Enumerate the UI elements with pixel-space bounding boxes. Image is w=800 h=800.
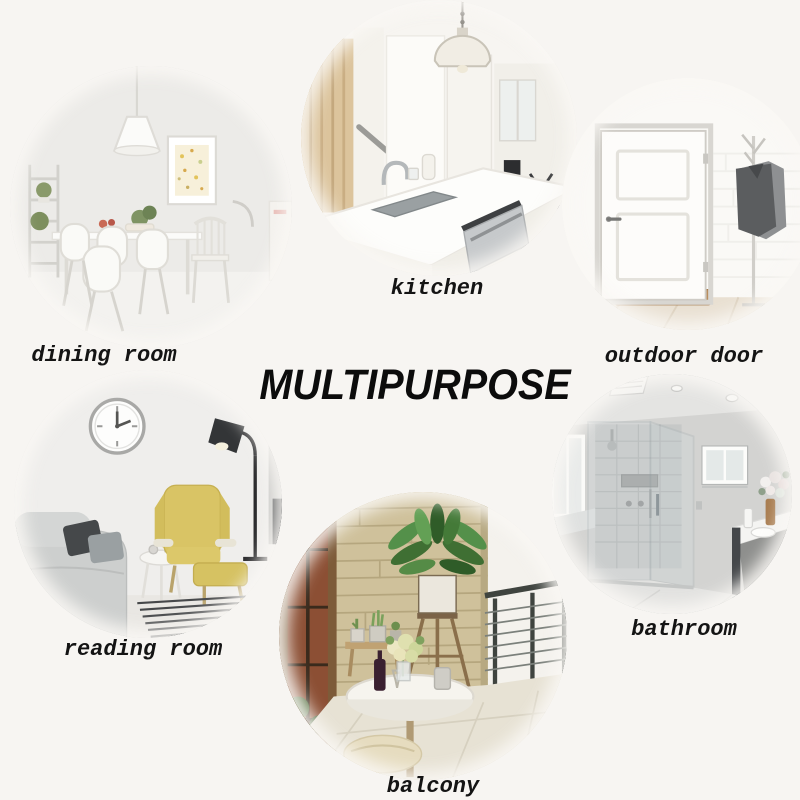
reading-room-scene xyxy=(14,370,282,638)
outdoor-door-scene xyxy=(562,78,800,330)
wall-art-frame xyxy=(168,137,216,205)
wine-bottle xyxy=(374,659,386,691)
ottoman xyxy=(194,563,248,586)
outdoor-door-label: outdoor door xyxy=(605,346,763,368)
outdoor-door-photo xyxy=(562,78,800,330)
kitchen-photo xyxy=(301,0,577,276)
reading-room-photo xyxy=(14,370,282,638)
page-title: MULTIPURPOSE xyxy=(259,364,570,407)
bottle xyxy=(422,155,434,180)
multipurpose-collage: MULTIPURPOSE dining room kitchen outdoor… xyxy=(0,0,800,800)
planter-box xyxy=(419,576,456,613)
balcony-photo xyxy=(279,492,567,780)
wood-stair xyxy=(301,28,398,221)
gray-pillow xyxy=(87,531,124,564)
floor xyxy=(10,272,292,348)
window xyxy=(702,446,748,487)
door xyxy=(597,126,710,302)
bathroom-photo xyxy=(552,374,792,614)
balcony-label: balcony xyxy=(387,776,479,798)
outlet xyxy=(696,501,702,509)
dining-room-scene xyxy=(10,66,292,348)
glass-panel xyxy=(588,422,650,580)
vent xyxy=(610,376,648,395)
sink xyxy=(751,528,775,538)
dining-room-photo xyxy=(10,66,292,348)
candle-jar xyxy=(435,668,451,690)
recessed-light xyxy=(726,394,738,401)
bathroom-scene xyxy=(552,374,792,614)
dining-room-label: dining room xyxy=(31,345,176,367)
kitchen-scene xyxy=(301,0,577,276)
balcony-scene xyxy=(279,492,567,780)
bathroom-label: bathroom xyxy=(631,619,737,641)
lotion-bottle xyxy=(744,508,752,527)
kitchen-label: kitchen xyxy=(391,278,483,300)
reading-room-label: reading room xyxy=(64,639,222,661)
wall-clock-icon xyxy=(90,399,144,453)
stool xyxy=(344,735,422,772)
